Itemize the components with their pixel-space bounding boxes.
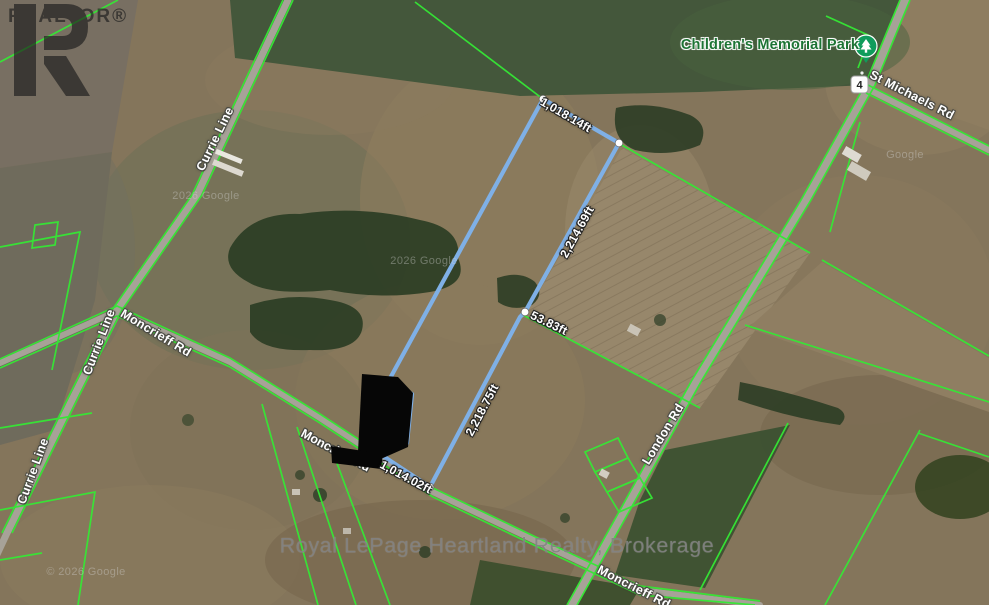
vertex-northeast bbox=[615, 139, 623, 147]
realtor-logo-icon bbox=[8, 4, 94, 98]
realtor-watermark: REALTOR® bbox=[8, 4, 128, 28]
terrain-fields bbox=[0, 0, 989, 605]
route-shield-number: 4 bbox=[856, 80, 863, 92]
vertex-south bbox=[426, 483, 434, 491]
vertex-east-jog bbox=[521, 308, 529, 316]
map-imagery: Moncrieff Rd bbox=[0, 0, 989, 605]
route-shield: 4 bbox=[851, 76, 868, 93]
satellite-map-canvas[interactable]: Moncrieff Rd bbox=[0, 0, 989, 605]
vertex-northwest bbox=[539, 95, 547, 103]
